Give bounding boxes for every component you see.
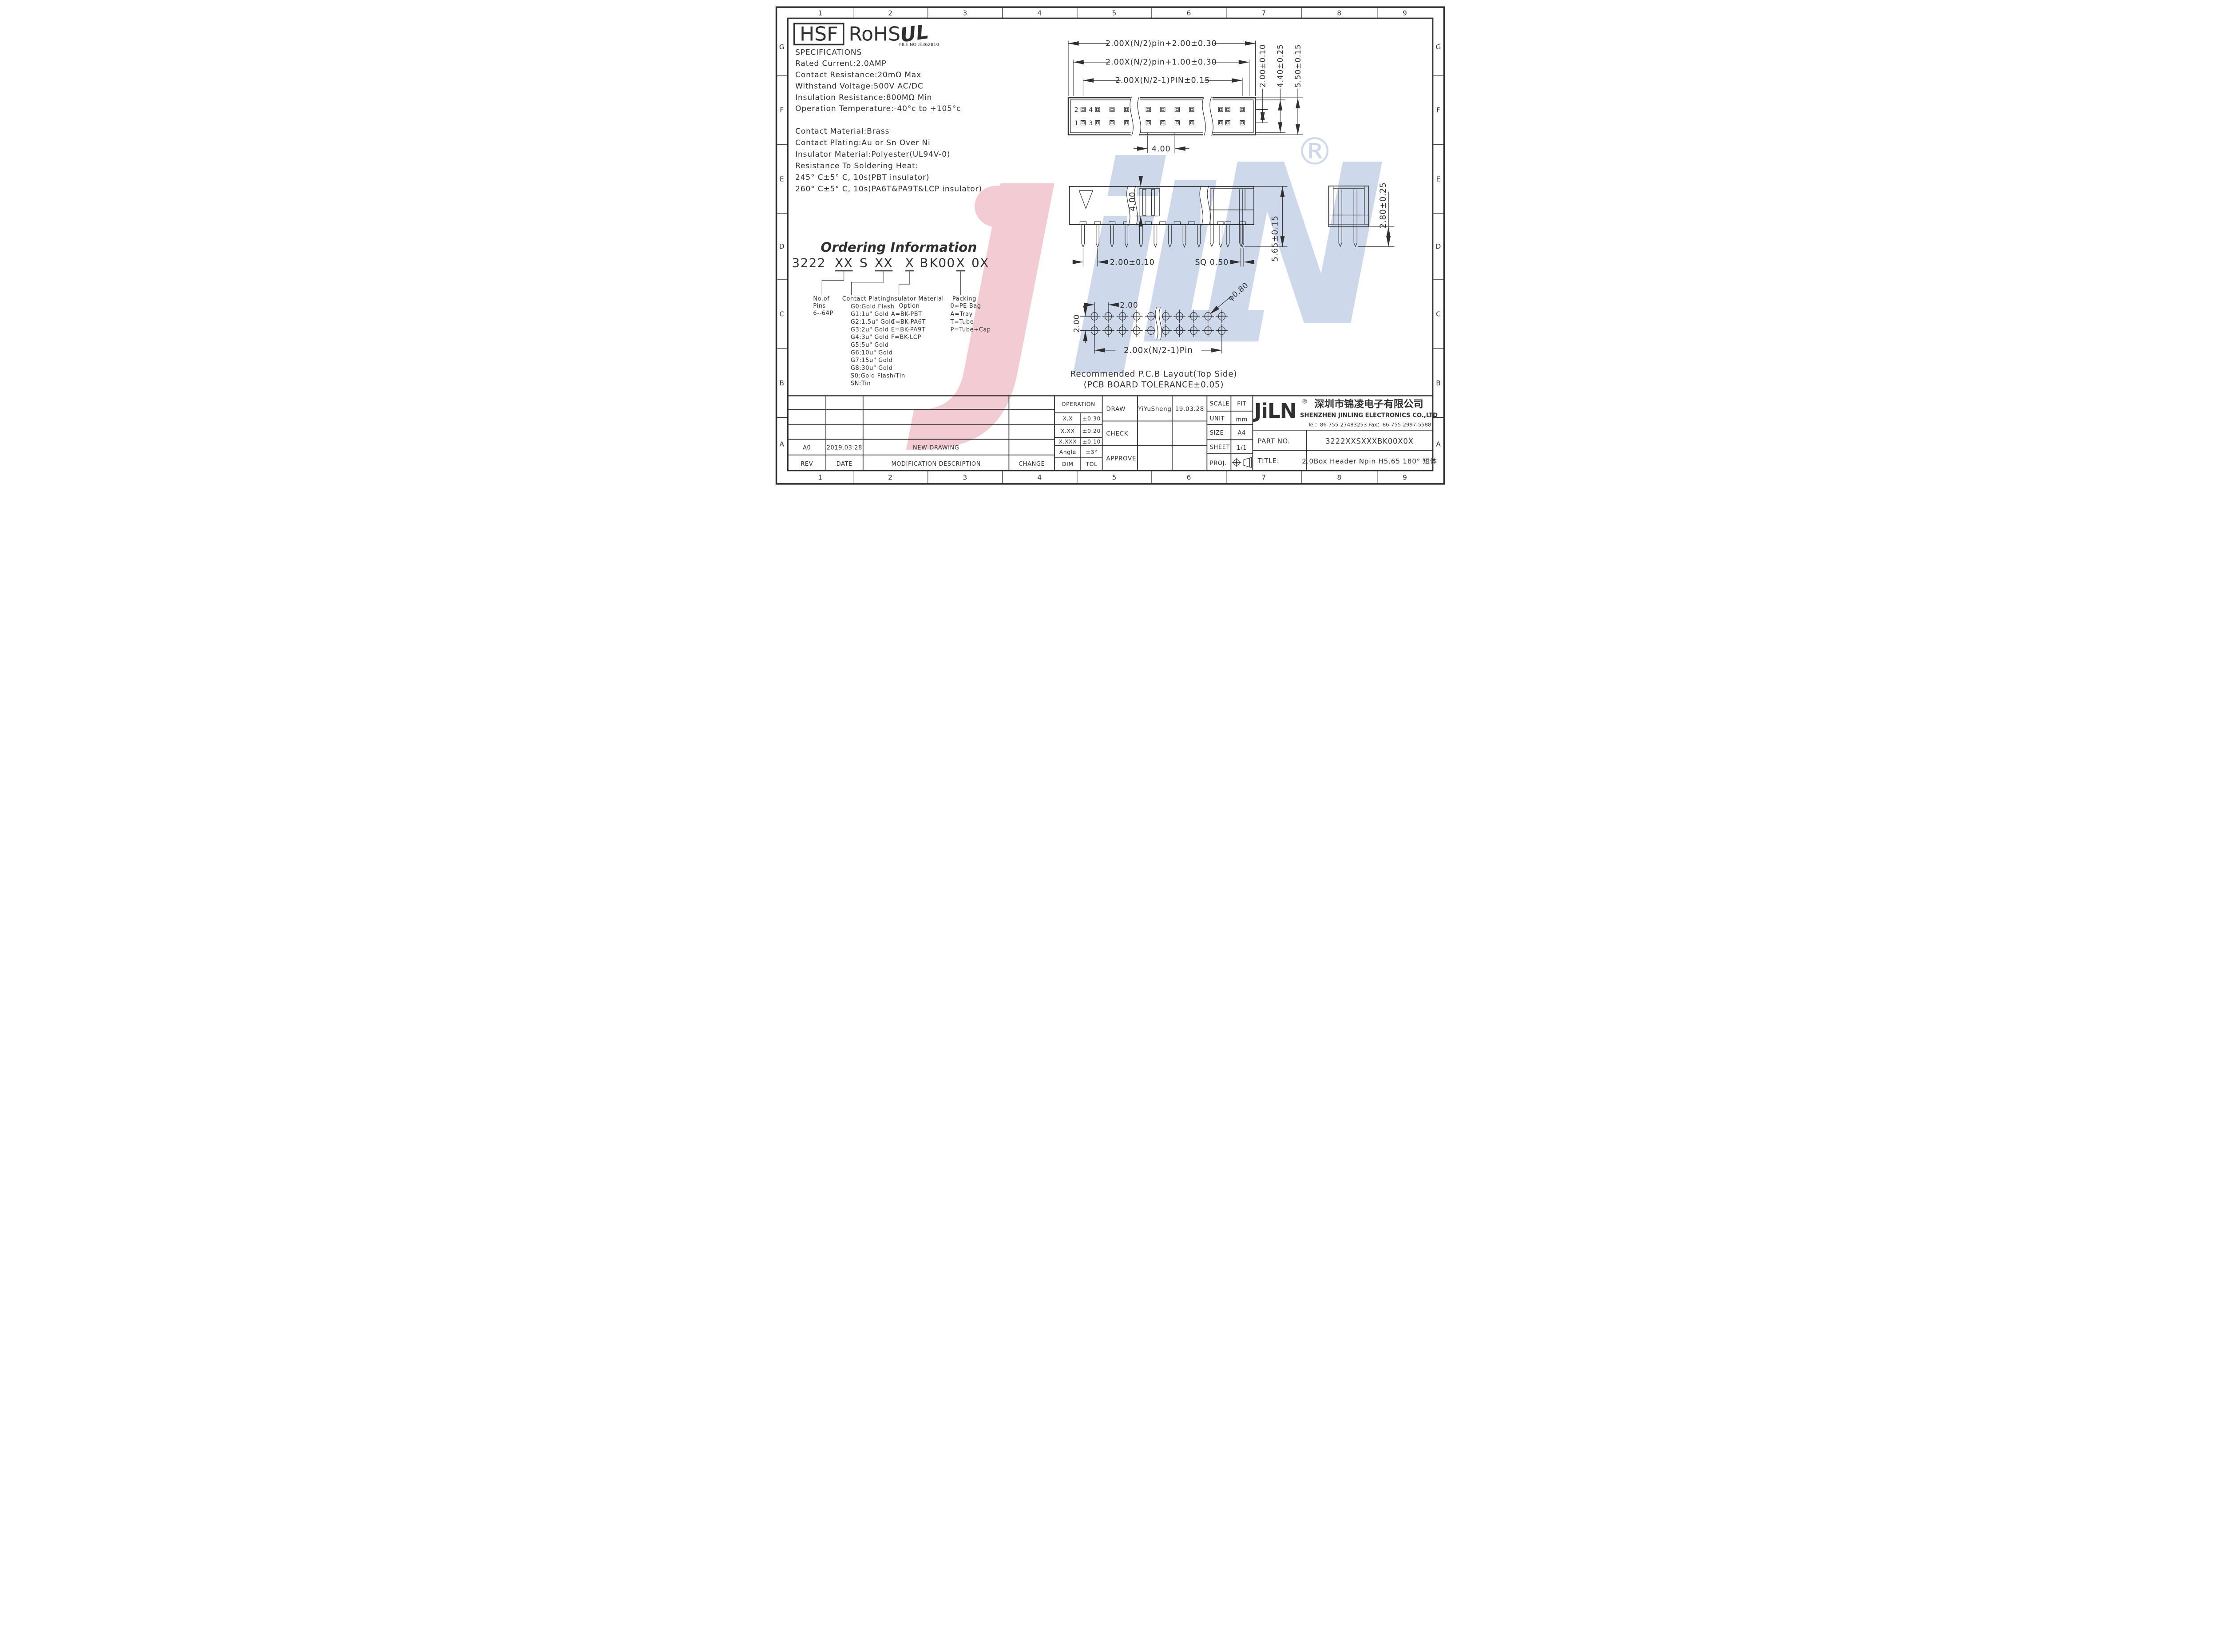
zone-col: 2 (888, 9, 892, 17)
plating-item: G2:1.5u" Gold (850, 319, 894, 325)
material-line: Contact Material:Brass (795, 127, 889, 136)
pin-number-2: 2 (1074, 107, 1078, 114)
insulator-item: C=BK-PA6T (891, 319, 925, 325)
tol-val-4: ±3° (1086, 449, 1097, 455)
spec-line: Insulation Resistance:800MΩ Min (795, 93, 932, 102)
pcb-caption-2: (PCB BOARD TOLERANCE±0.05) (1083, 380, 1224, 390)
rohs-logo: RoHS (848, 23, 900, 46)
tol-val-1: ±0.30 (1082, 416, 1101, 422)
dim-row-pitch: 2.00±0.10 (1258, 44, 1267, 87)
hsf-logo: HSF (800, 23, 838, 46)
specifications: SPECIFICATIONS Rated Current:2.0AMP Cont… (795, 48, 961, 113)
unit-value: mm (1236, 416, 1247, 423)
zone-numbers-top: 1 2 3 4 5 6 7 8 9 (818, 9, 1407, 17)
zone-col: 1 (818, 9, 822, 17)
insulator-item: F=BK-LCP (891, 334, 921, 341)
scale-label: SCALE (1209, 401, 1229, 408)
zone-col: 8 (1337, 9, 1341, 17)
zone-col: 3 (963, 9, 967, 17)
zone-col: 4 (1037, 473, 1042, 481)
tol-dim-4: Angle (1059, 449, 1076, 455)
dim-inner: 2.00X(N/2)pin+1.00±0.30 (1105, 58, 1217, 67)
company-registered-icon: ® (1301, 398, 1308, 405)
tol-val-3: ±0.10 (1082, 439, 1101, 445)
zone-row: D (1435, 242, 1441, 250)
zone-row: E (779, 175, 784, 183)
insulator-item: A=BK-PBT (891, 311, 922, 318)
sheet-value: 1/1 (1237, 445, 1247, 452)
plating-item: SN:Tin (850, 380, 870, 387)
spec-title: SPECIFICATIONS (795, 48, 862, 57)
sign-approve-label: APPROVE (1106, 455, 1136, 462)
zone-row: B (779, 379, 784, 387)
dim-key: 4.00 (1151, 145, 1170, 154)
dim-col: 2.00 (1120, 301, 1138, 310)
pins-col-l3: 6--64P (813, 310, 833, 317)
spec-line: Rated Current:2.0AMP (795, 59, 887, 68)
zone-col: 4 (1037, 9, 1042, 17)
revision-desc: NEW DRAWING (912, 444, 959, 451)
packing-header: Packing (952, 296, 976, 302)
dim-body-inner: 4.40±0.25 (1276, 44, 1285, 87)
dim-overall: 2.00X(N/2)pin+2.00±0.30 (1105, 39, 1217, 48)
part-no-value: 3222XXSXXXBK00X0X (1325, 437, 1414, 446)
pins-col-l2: Pins (813, 303, 826, 309)
ordering-title: Ordering Information (821, 240, 977, 255)
revision-header-change: CHANGE (1019, 461, 1045, 467)
zone-col: 6 (1186, 473, 1191, 481)
insulator-subheader: Option (899, 303, 920, 309)
sheet-label: SHEET (1209, 444, 1229, 451)
plating-item: G5:5u" Gold (850, 342, 888, 349)
zone-row: C (1436, 310, 1441, 318)
zone-col: 5 (1112, 9, 1116, 17)
revision-header-desc: MODIFICATION DESCRIPTION (891, 461, 981, 467)
zone-col: 9 (1403, 9, 1407, 17)
sign-draw-name: YiYuSheng (1138, 405, 1171, 412)
material-line: Contact Plating:Au or Sn Over Ni (795, 139, 930, 147)
title-value: 2.0Box Header Npin H5.65 180° 短体 (1302, 457, 1437, 465)
scale-value: FIT (1237, 401, 1246, 408)
size-value: A4 (1237, 430, 1245, 436)
code-part: XX (835, 255, 853, 270)
tol-dim-2: X.XX (1060, 428, 1074, 434)
zone-col: 8 (1337, 473, 1341, 481)
dim-span: 2.00x(N/2-1)Pin (1123, 346, 1193, 355)
zone-row: G (779, 43, 785, 51)
insulator-header: Insulator Material (888, 296, 944, 302)
zone-row: F (780, 106, 784, 114)
code-part: 3222 (792, 255, 826, 270)
plating-item: G3:2u" Gold (850, 326, 888, 333)
pins-col-l1: No.of (813, 296, 829, 302)
code-part: X (905, 255, 914, 270)
dim-height: 5.65±0.15 (1270, 215, 1280, 261)
zone-row: F (1436, 106, 1441, 114)
code-part: B (920, 255, 929, 270)
unit-label: UNIT (1209, 416, 1224, 422)
company-name-cn: 深圳市锦凌电子有限公司 (1314, 398, 1423, 410)
insulator-item: E=BK-PA9T (891, 326, 925, 333)
company-logo: JiLN (1253, 399, 1296, 423)
projection-symbol-icon (1232, 458, 1251, 467)
zone-row: G (1435, 43, 1441, 51)
code-leader-lines (822, 271, 960, 295)
zone-letters-left: G F E D C B A (779, 43, 785, 448)
revision-header-date: DATE (836, 461, 852, 467)
zone-col: 3 (963, 473, 967, 481)
zone-row: C (779, 310, 784, 318)
code-part: X (956, 255, 965, 270)
zone-col: 9 (1403, 473, 1407, 481)
tol-val-2: ±0.20 (1082, 428, 1101, 434)
zone-col: 2 (888, 473, 892, 481)
packing-item: P=Tube+Cap (950, 326, 991, 333)
company-block: JiLN ® 深圳市锦凌电子有限公司 SHENZHEN JINLING ELEC… (1253, 398, 1437, 465)
code-part: 0X (971, 255, 989, 270)
dim-pin-span: 2.00X(N/2-1)PIN±0.15 (1115, 76, 1209, 85)
drawing-canvas: J i L N ® (767, 0, 1453, 485)
ordering-code: 3222 XX S XX X B K00 X 0X (792, 255, 989, 270)
pcb-caption-1: Recommended P.C.B Layout(Top Side) (1070, 370, 1237, 379)
code-part: XX (875, 255, 893, 270)
proj-label: PROJ. (1209, 460, 1226, 467)
ul-file-no: FILE NO :E362810 (899, 42, 939, 47)
material-line: 245° C±5° C, 10s(PBT insulator) (795, 173, 929, 182)
tol-dim-1: X.X (1062, 416, 1073, 422)
zone-col: 1 (818, 473, 822, 481)
code-part: S (860, 255, 868, 270)
dim-depth: 4.00 (1128, 192, 1137, 211)
tolerance-header: OPERATION (1061, 401, 1095, 408)
watermark-registered-icon: ® (1296, 130, 1333, 174)
plating-item: G4:3u" Gold (850, 334, 888, 341)
tol-footer-tol: TOL (1085, 461, 1097, 467)
sign-draw-date: 19.03.28 (1175, 405, 1204, 412)
spec-line: Operation Temperature:-40°c to +105°c (795, 104, 961, 113)
packing-item: T=Tube (950, 319, 974, 325)
title-label: TITLE: (1257, 457, 1279, 465)
revision-rev: A0 (803, 444, 811, 451)
part-no-label: PART NO. (1257, 437, 1290, 445)
spec-line: Contact Resistance:20mΩ Max (795, 71, 921, 79)
zone-row: D (779, 242, 785, 250)
revision-date: 2019.03.28 (826, 444, 862, 451)
dim-tail: 2.80±0.25 (1379, 182, 1388, 228)
material-line: Insulator Material:Polyester(UL94V-0) (795, 150, 950, 159)
zone-row: B (1436, 379, 1441, 387)
code-part: K00 (929, 255, 955, 270)
zone-row: A (779, 440, 784, 448)
plating-item: G6:10u" Gold (850, 349, 892, 356)
dim-row: 2.00 (1072, 314, 1081, 333)
plating-item: G8:30u" Gold (850, 365, 892, 372)
packing-item: 0=PE Bag (950, 303, 981, 309)
plating-item: S0:Gold Flash/Tin (850, 372, 905, 379)
drawing-sheet: J i L N ® (767, 0, 1453, 485)
zone-letters-right: G F E D C B A (1435, 43, 1441, 448)
company-name-en: SHENZHEN JINLING ELECTRONICS CO.,LTD (1300, 412, 1438, 419)
zone-row: E (1436, 175, 1440, 183)
plating-header: Contact Plating (842, 296, 890, 302)
zone-col: 5 (1112, 473, 1116, 481)
plating-item: G7:15u" Gold (850, 357, 892, 364)
pin-number-4: 4 (1089, 107, 1093, 114)
dim-pitch: 2.00±0.10 (1110, 258, 1154, 267)
company-tel: Tel：86-755-27483253 Fax：86-755-2997-5588 (1307, 422, 1431, 428)
zone-col: 6 (1186, 9, 1191, 17)
material-line: Resistance To Soldering Heat: (795, 162, 918, 170)
sign-check-label: CHECK (1106, 430, 1128, 437)
pin-number-1: 1 (1074, 120, 1078, 127)
revision-header-rev: REV (801, 461, 813, 467)
zone-row: A (1436, 440, 1441, 448)
title-block: A0 2019.03.28 NEW DRAWING REV DATE MODIF… (788, 396, 1438, 471)
tol-footer-dim: DIM (1062, 461, 1073, 467)
sign-draw-label: DRAW (1106, 405, 1126, 412)
plating-item: G1:1u" Gold (850, 311, 888, 318)
zone-numbers-bottom: 1 2 3 4 5 6 7 8 9 (818, 473, 1407, 481)
dim-sq: SQ 0.50 (1195, 258, 1229, 267)
pin-number-3: 3 (1089, 120, 1093, 127)
zone-col: 7 (1261, 9, 1266, 17)
certifications: HSF RoHS UL FILE NO :E362810 (794, 20, 939, 47)
material-line: 260° C±5° C, 10s(PA6T&PA9T&LCP insulator… (795, 185, 982, 194)
packing-item: A=Tray (950, 311, 972, 318)
zone-col: 7 (1261, 473, 1266, 481)
dim-body-outer: 5.50±0.15 (1293, 44, 1302, 87)
plating-item: G0:Gold Flash (850, 303, 894, 310)
size-label: SIZE (1209, 430, 1224, 436)
tol-dim-3: X.XXX (1058, 439, 1077, 445)
spec-line: Withstand Voltage:500V AC/DC (795, 82, 923, 91)
